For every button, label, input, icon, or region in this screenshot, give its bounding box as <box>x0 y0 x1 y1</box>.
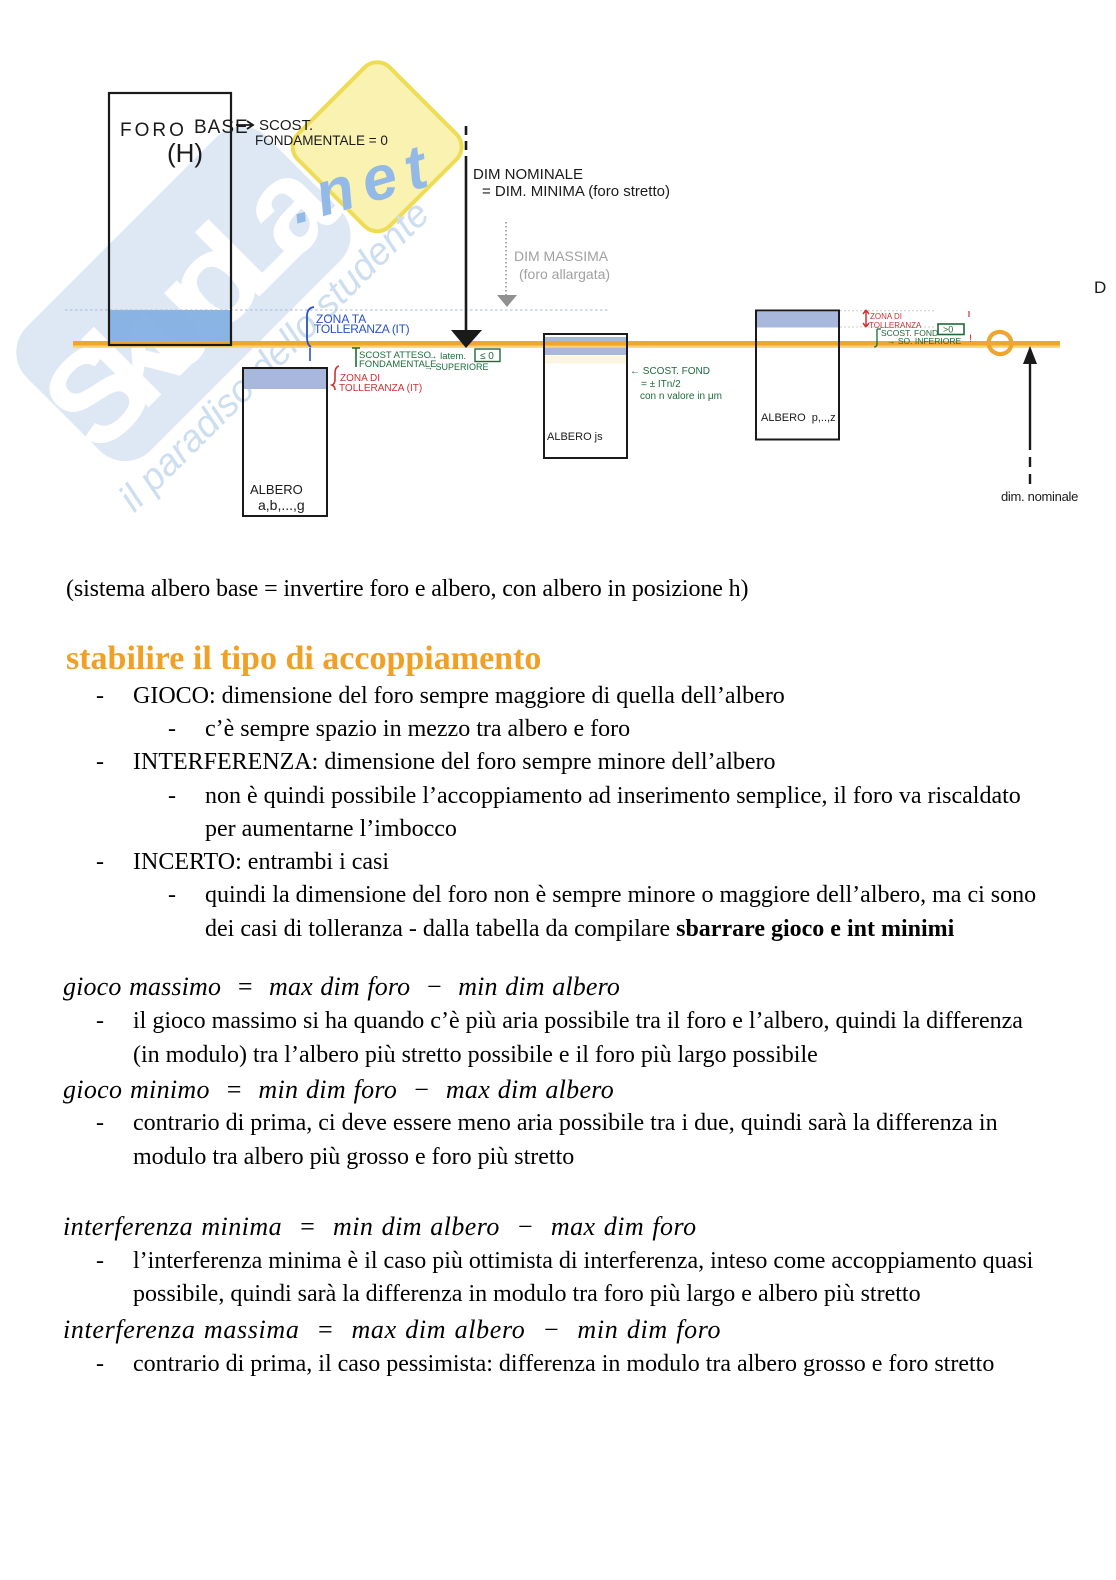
svg-text:← SCOST. FOND: ← SCOST. FOND <box>630 366 710 377</box>
svg-text:con n valore in μm: con n valore in μm <box>640 391 722 402</box>
svg-text:TOLLERANZA (IT): TOLLERANZA (IT) <box>314 322 410 336</box>
svg-text:(H): (H) <box>167 138 203 168</box>
svg-text:→ latem.: → latem. <box>428 351 466 362</box>
svg-text:D: D <box>1094 278 1106 297</box>
svg-text:dim. nominale: dim. nominale <box>1001 489 1078 504</box>
svg-text:TOLLERANZA (IT): TOLLERANZA (IT) <box>339 383 422 394</box>
svg-text:= DIM. MINIMA (foro stretto): = DIM. MINIMA (foro stretto) <box>482 183 670 200</box>
svg-text:= ± ITn/2: = ± ITn/2 <box>641 379 681 390</box>
svg-text:ALBERO: ALBERO <box>250 482 303 497</box>
svg-text:SCOST.: SCOST. <box>259 117 313 134</box>
svg-text:→ SO. INFERIORE: → SO. INFERIORE <box>887 336 961 346</box>
svg-text:ZONA DI: ZONA DI <box>870 312 902 321</box>
svg-text:→ SUPERIORE: → SUPERIORE <box>424 362 489 372</box>
svg-text:FONDAMENTALE = 0: FONDAMENTALE = 0 <box>255 133 388 148</box>
svg-text:!: ! <box>969 333 972 345</box>
svg-text:>0: >0 <box>943 325 953 335</box>
svg-text:(foro allargata): (foro allargata) <box>519 266 610 282</box>
svg-text:≤ 0: ≤ 0 <box>480 351 494 362</box>
svg-text:ALBERO p,..,z: ALBERO p,..,z <box>761 412 836 424</box>
svg-text:DIM NOMINALE: DIM NOMINALE <box>473 166 583 183</box>
svg-text:DIM MASSIMA: DIM MASSIMA <box>514 248 609 264</box>
svg-text:a,b,...,g: a,b,...,g <box>258 497 305 513</box>
svg-text:ALBERO js: ALBERO js <box>547 431 603 443</box>
svg-text:BASE: BASE <box>194 117 249 138</box>
